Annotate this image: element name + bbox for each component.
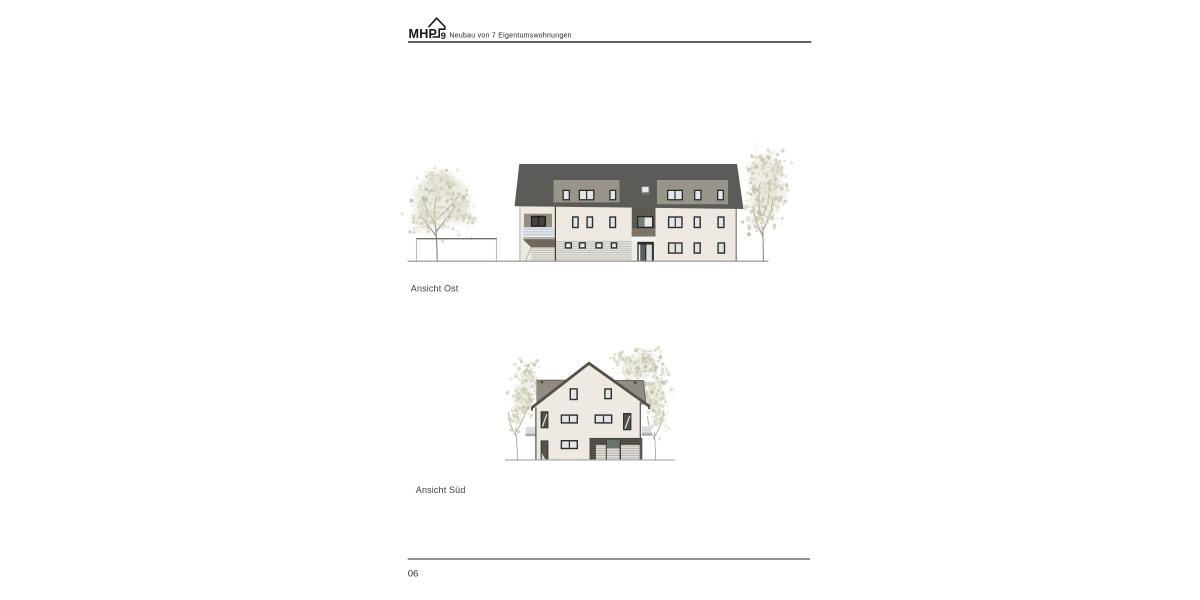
svg-text:Neubau von 7 Eigentumswohnunge: Neubau von 7 Eigentumswohnungen <box>450 32 572 39</box>
svg-text:MHP: MHP <box>409 27 438 41</box>
svg-text:06: 06 <box>408 569 419 580</box>
svg-text:Ansicht Süd: Ansicht Süd <box>416 485 466 495</box>
svg-text:Ansicht Ost: Ansicht Ost <box>411 284 459 294</box>
svg-text:9: 9 <box>441 31 446 42</box>
